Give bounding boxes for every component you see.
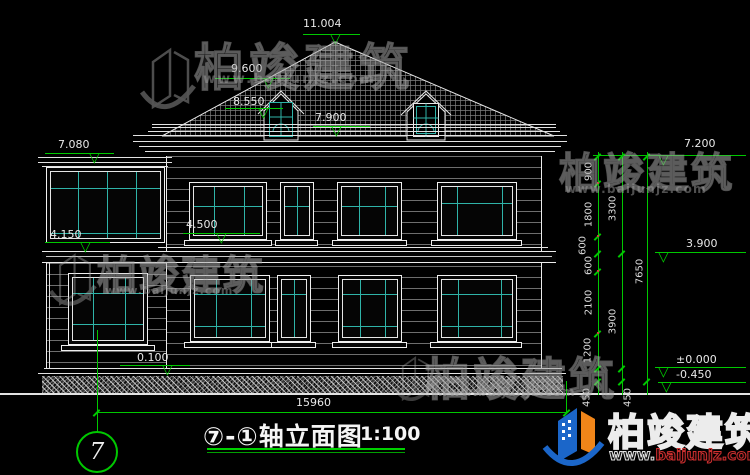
fascia-line [152, 127, 556, 128]
watermark-url: www.baijunjz.com [437, 385, 576, 399]
window-2f-4 [437, 182, 517, 240]
title-underline [207, 452, 405, 453]
dim-value: 600 [584, 251, 595, 281]
glass-mullion [385, 280, 386, 337]
window-sill [275, 240, 318, 246]
window-sill [184, 342, 276, 348]
glass-transom [285, 206, 309, 207]
glass-transom [51, 188, 160, 189]
watermark-logo-icon [137, 38, 197, 120]
brand-url-domain: baijunjz.com [655, 446, 750, 464]
glass-transom [442, 203, 512, 204]
glass-mullion [297, 187, 298, 235]
elevation-triangle-icon: ▽ [661, 381, 672, 393]
glass-mullion [359, 187, 360, 235]
axis-line [97, 330, 98, 433]
dim-node [597, 235, 599, 237]
dim-value: 3900 [608, 307, 619, 337]
slab-line [38, 157, 172, 158]
watermark-url: www.baijunjz.com [105, 284, 233, 297]
glass-mullion [294, 280, 295, 337]
window-1f-3 [338, 275, 402, 342]
elevation-line [120, 365, 190, 366]
glass-transom [73, 324, 143, 325]
window-2f-3 [337, 182, 402, 240]
window-inner-frame [341, 186, 398, 236]
elevation-value: ±0.000 [676, 353, 717, 366]
glass-transom [282, 294, 306, 295]
cornice-line [133, 141, 567, 142]
glass-mullion [107, 172, 108, 238]
dim-value: 1800 [584, 200, 595, 230]
elevation-triangle-icon: ▽ [658, 251, 669, 263]
window-1f-4 [437, 275, 517, 342]
window-inner-frame [342, 279, 398, 338]
dim-value: 2100 [584, 288, 595, 318]
elevation-triangle-icon: ▽ [89, 152, 100, 164]
glass-mullion [502, 187, 503, 235]
glass-transom [442, 294, 512, 295]
ground-line [0, 393, 750, 395]
slab-line [38, 162, 172, 163]
glass-transom [195, 326, 265, 327]
brand-url-prefix: www. [609, 446, 655, 464]
glass-transom [194, 206, 262, 207]
elevation-value: 4.500 [186, 218, 218, 231]
fascia-line [148, 131, 560, 132]
window-inner-frame [441, 279, 513, 338]
window-1f-2 [277, 275, 311, 342]
elevation-value: 3.900 [686, 237, 718, 250]
glass-transom [342, 206, 397, 207]
watermark-url: www.baijunjz.com [565, 182, 707, 196]
elevation-triangle-icon: ▽ [658, 366, 669, 378]
dim-value: 15960 [296, 396, 331, 409]
cornice-line [139, 146, 561, 147]
dim-node [597, 332, 599, 334]
elevation-line [45, 153, 114, 154]
watermark-brand: 柏竣建筑 [194, 28, 414, 100]
glass-mullion [360, 280, 361, 337]
glass-mullion [136, 172, 137, 238]
window-sill [332, 240, 407, 246]
elevation-value: 7.080 [58, 138, 90, 151]
dim-line [97, 412, 567, 413]
axis-number: 7 [90, 439, 105, 465]
glass-transom [343, 326, 397, 327]
glass-mullion [244, 187, 245, 235]
brand-url: www.baijunjz.com [609, 446, 750, 464]
window-2f-2 [280, 182, 314, 240]
glass-transom [343, 294, 397, 295]
watermark-logo-icon [46, 245, 98, 315]
watermark-url: www.baijunjz.com [203, 71, 376, 87]
elevation-triangle-icon: ▽ [258, 107, 269, 119]
glass-mullion [458, 280, 459, 337]
window-2f-1 [189, 182, 267, 240]
dim-node [597, 270, 599, 272]
glass-mullion [385, 187, 386, 235]
title-underline [207, 448, 405, 450]
cad-elevation-drawing: 11.004 ▽ 9.600 ▽ 8.550 ▽ 7.900 ▽ 7.080 ▽… [0, 0, 750, 475]
cornice-line [145, 151, 555, 152]
elevation-line [225, 108, 283, 109]
elevation-value: 4.150 [50, 228, 82, 241]
elevation-triangle-icon: ▽ [331, 125, 342, 137]
window-sill [431, 240, 522, 246]
cornice-line [133, 135, 567, 136]
drawing-scale: 1:100 [360, 423, 420, 445]
elevation-value: -0.450 [676, 368, 711, 381]
elevation-triangle-icon: ▽ [162, 364, 173, 376]
glass-mullion [457, 187, 458, 235]
glass-mullion [501, 280, 502, 337]
brand-logo-icon [540, 399, 606, 473]
window-sill [271, 342, 316, 348]
dim-value: 7650 [635, 257, 646, 287]
window-sill [332, 342, 407, 348]
glass-transom [442, 326, 512, 327]
fascia-line [152, 124, 556, 125]
axis-bubble: 7 [76, 431, 118, 473]
